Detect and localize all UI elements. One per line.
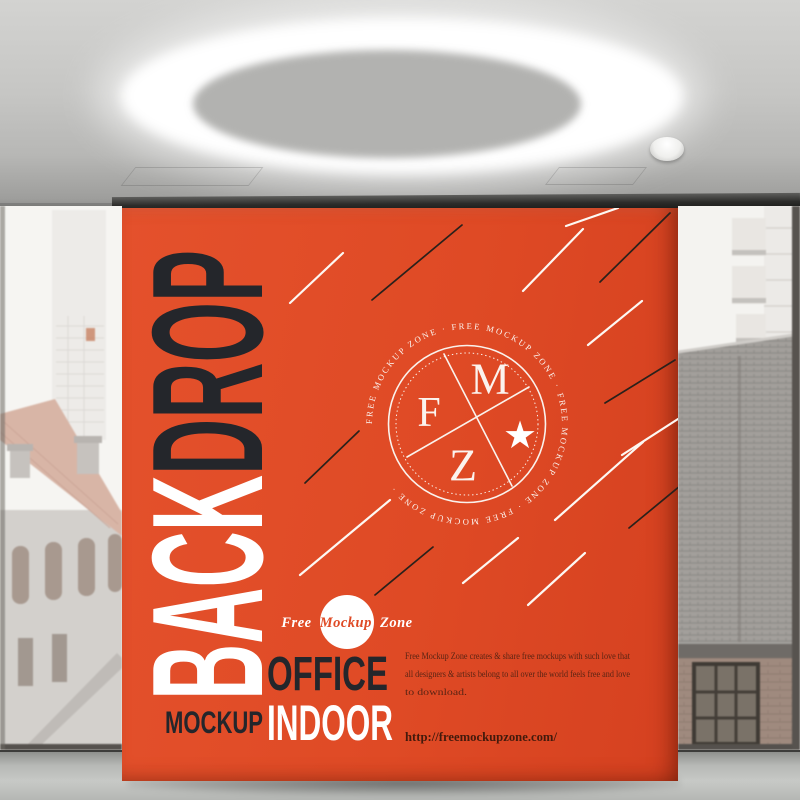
badge-letter-f: F xyxy=(417,390,440,436)
eave-band xyxy=(678,644,800,658)
diagonal-line-white xyxy=(463,538,518,583)
window-view-left xyxy=(0,206,122,750)
diagonal-line-dark xyxy=(605,360,675,403)
chimney xyxy=(10,448,30,478)
ceiling-panel xyxy=(545,167,647,185)
balconies xyxy=(732,218,766,344)
ring-inner-hole xyxy=(193,50,581,158)
window-view-right xyxy=(678,206,800,750)
badge-circular-text: FREE MOCKUP ZONE · FREE MOCKUP ZONE · FR… xyxy=(364,321,570,527)
office-scene: BACK DROP FREE MOCKUP ZONE · FREE MOCKUP… xyxy=(0,0,800,800)
title-mockup: MOCKUP xyxy=(165,704,263,740)
chimney xyxy=(77,440,99,474)
drainpipe xyxy=(738,356,741,642)
diagonal-line-white xyxy=(300,500,390,575)
description-line: all designers & artists belong to all ov… xyxy=(405,669,630,679)
diagonal-line-dark xyxy=(372,225,462,300)
diagonal-line-white xyxy=(588,301,642,345)
title-office: OFFICE xyxy=(267,648,388,701)
vertical-title-drop: DROP xyxy=(122,250,296,475)
diagonal-line-dark xyxy=(305,431,359,483)
diagonal-line-dark xyxy=(600,213,670,282)
badge-letter-z: Z xyxy=(449,440,477,491)
window-frame xyxy=(792,206,800,750)
script-logo: Free Mockup Zone xyxy=(280,595,412,649)
diagonal-line-white xyxy=(566,208,618,226)
diagonal-line-white xyxy=(528,553,585,605)
badge-letter-m: M xyxy=(470,355,509,404)
smoke-detector xyxy=(650,137,684,161)
city-buildings-left xyxy=(0,206,122,750)
lit-window xyxy=(86,328,95,341)
backdrop-poster: BACK DROP FREE MOCKUP ZONE · FREE MOCKUP… xyxy=(122,208,678,781)
diagonal-line-white xyxy=(290,253,343,303)
window-frame xyxy=(0,206,5,750)
diagonal-line-dark xyxy=(375,547,433,595)
ceiling xyxy=(0,0,800,207)
diagonal-lines xyxy=(290,208,678,605)
city-buildings-right xyxy=(678,206,800,750)
fmz-badge: FREE MOCKUP ZONE · FREE MOCKUP ZONE · FR… xyxy=(364,321,570,527)
diagonal-line-white xyxy=(622,419,678,455)
description: Free Mockup Zone creates & share free mo… xyxy=(405,651,630,697)
diagonal-line-white xyxy=(523,229,583,291)
brick-window xyxy=(692,662,760,746)
description-line: Free Mockup Zone creates & share free mo… xyxy=(405,651,630,661)
ceiling-panel xyxy=(121,167,264,186)
star-icon: ★ xyxy=(503,415,537,457)
title-indoor: INDOOR xyxy=(267,695,393,751)
script-logo-text: Free Mockup Zone xyxy=(280,615,412,631)
ring-light xyxy=(0,0,800,212)
website-url: http://freemockupzone.com/ xyxy=(405,730,558,744)
diagonal-line-white xyxy=(555,442,643,520)
diagonal-line-dark xyxy=(629,486,678,528)
description-line: to download. xyxy=(405,687,467,697)
